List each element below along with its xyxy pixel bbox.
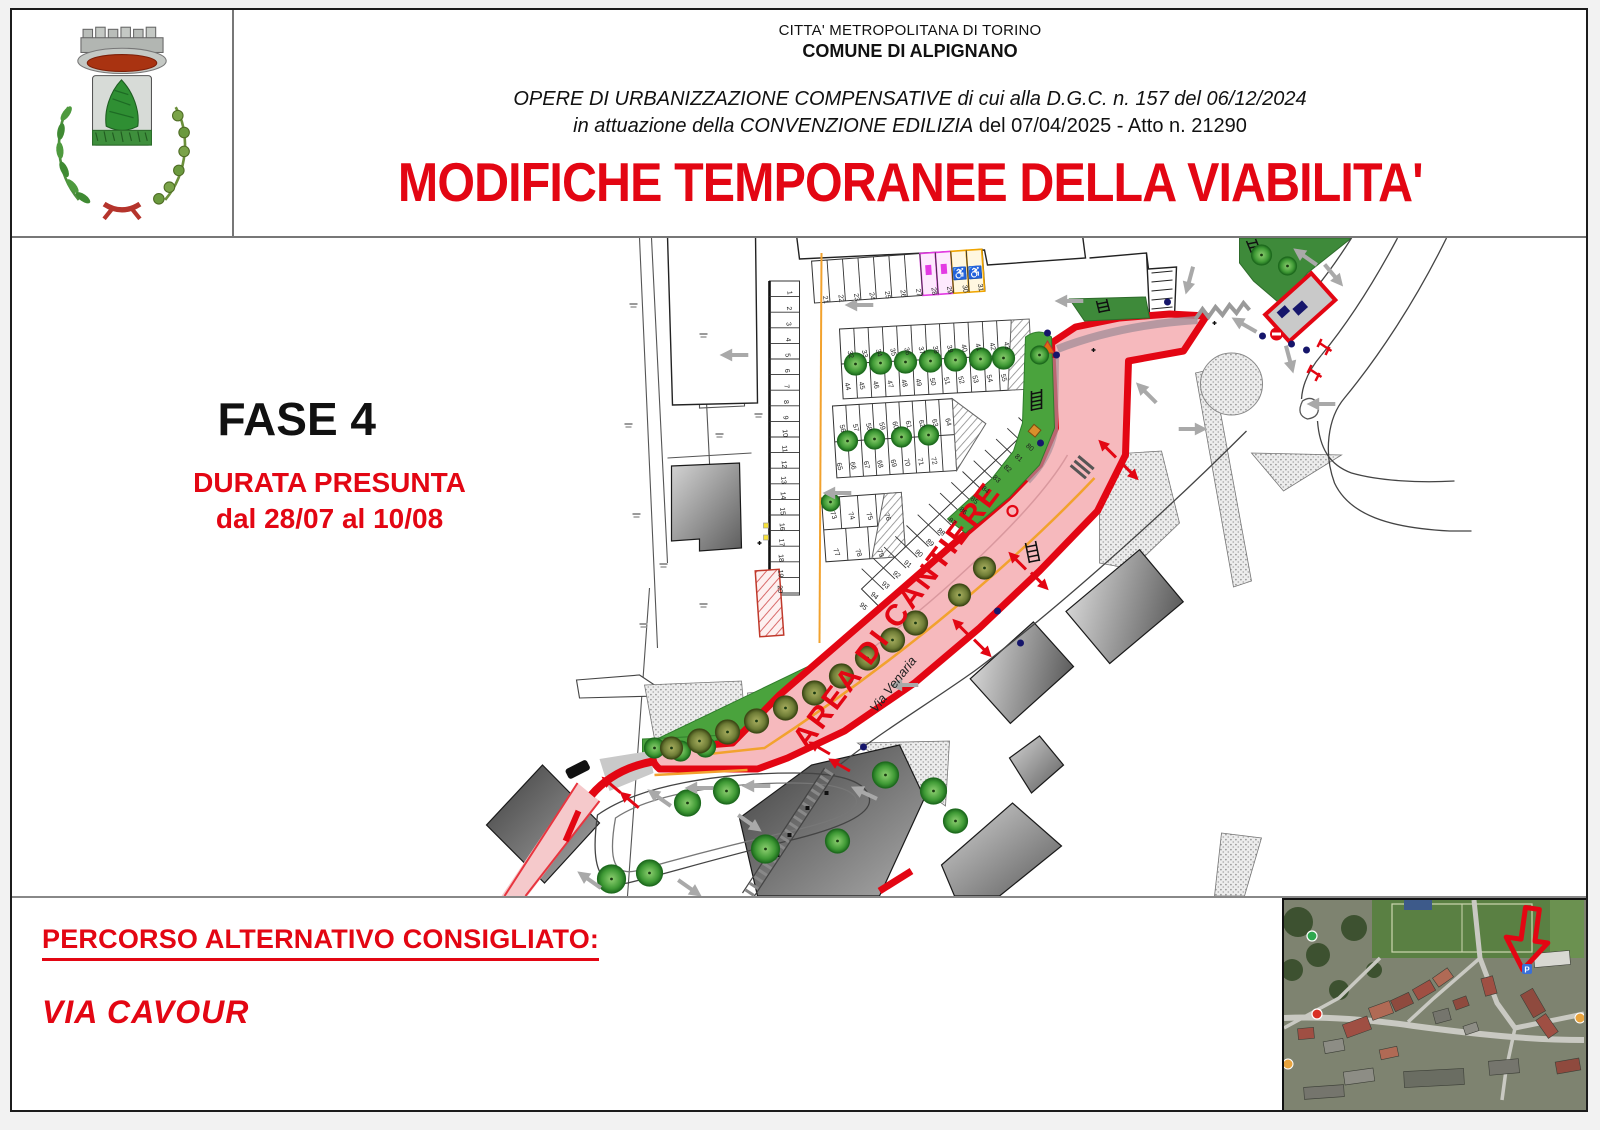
svg-text:2: 2 [785,306,792,311]
svg-text:18: 18 [777,554,785,562]
site-plan-map: ♿ ♿ [12,238,1586,896]
works-line: OPERE DI URBANIZZAZIONE COMPENSATIVE di … [513,88,1306,111]
svg-text:9: 9 [781,415,788,420]
svg-text:1: 1 [785,291,792,296]
phase-duration-heading: DURATA PRESUNTA [193,467,466,498]
footer-band: PERCORSO ALTERNATIVO CONSIGLIATO: VIA CA… [12,896,1586,1110]
agreement-line-regular: del 07/04/2025 - Atto n. 21290 [979,115,1247,137]
svg-text:7: 7 [782,384,789,389]
svg-text:6: 6 [783,369,790,374]
phase-duration-dates: dal 28/07 al 10/08 [216,503,443,534]
svg-text:10: 10 [781,429,789,437]
oak-branch-icon [154,107,190,204]
svg-text:19: 19 [776,569,784,577]
svg-text:95: 95 [858,602,869,612]
crown-icon [78,27,166,73]
svg-text:27: 27 [914,288,922,297]
svg-text:26: 26 [898,289,906,298]
pink-hatched-reserve [755,569,784,637]
svg-text:24: 24 [867,292,875,301]
roundabout [1201,353,1263,415]
aisle-edge-orange-line [820,253,822,643]
svg-text:31: 31 [976,283,984,292]
laurel-branch-icon [56,105,92,206]
svg-text:20: 20 [776,585,784,593]
svg-text:22: 22 [836,294,844,303]
region-line: CITTA' METROPOLITANA DI TORINO [779,22,1042,39]
municipality-line: COMUNE DI ALPIGNANO [802,41,1017,62]
svg-text:30: 30 [960,284,968,293]
svg-text:P: P [1524,966,1530,975]
svg-text:12: 12 [780,460,788,468]
svg-text:13: 13 [779,476,787,484]
svg-text:28: 28 [929,287,937,296]
phase-name: FASE 4 [218,393,377,445]
ribbon-icon [104,204,140,219]
municipal-coat-of-arms [12,10,234,236]
svg-text:3: 3 [784,322,791,327]
header-text-block: CITTA' METROPOLITANA DI TORINO COMUNE DI… [234,10,1586,236]
barrier-bracket-icon [1318,339,1332,355]
svg-text:23: 23 [852,293,860,302]
svg-text:15: 15 [778,507,786,515]
agreement-line: in attuazione della CONVENZIONE EDILIZIA… [573,115,1247,138]
page-title: MODIFICHE TEMPORANEE DELLA VIABILITA' [398,150,1423,214]
notice-page: CITTA' METROPOLITANA DI TORINO COMUNE DI… [10,8,1588,1112]
svg-text:11: 11 [780,445,788,453]
svg-text:14: 14 [779,491,787,499]
svg-text:17: 17 [777,538,785,546]
shield-icon [93,76,152,145]
accessible-stall-symbol: ♿ [968,265,984,280]
accessible-stall-symbol: ♿ [952,266,968,281]
svg-text:29: 29 [945,286,953,295]
alternative-route-street: VIA CAVOUR [42,994,249,1031]
svg-text:21: 21 [821,295,829,304]
satellite-inset: P [1282,898,1586,1110]
plan-svg: ♿ ♿ [12,238,1586,896]
header: CITTA' METROPOLITANA DI TORINO COMUNE DI… [12,10,1586,238]
car-icon [565,759,591,780]
notice-page-stage: CITTA' METROPOLITANA DI TORINO COMUNE DI… [0,0,1600,1130]
svg-text:8: 8 [782,400,789,405]
svg-text:4: 4 [784,337,791,342]
alternative-route-heading: PERCORSO ALTERNATIVO CONSIGLIATO: [42,924,599,961]
agreement-line-italic: in attuazione della CONVENZIONE EDILIZIA [573,115,973,137]
svg-text:25: 25 [883,290,891,299]
coat-of-arms-icon [42,23,202,223]
svg-text:16: 16 [778,523,786,531]
svg-text:5: 5 [783,353,790,358]
satellite-inset-svg: P [1284,900,1584,1108]
